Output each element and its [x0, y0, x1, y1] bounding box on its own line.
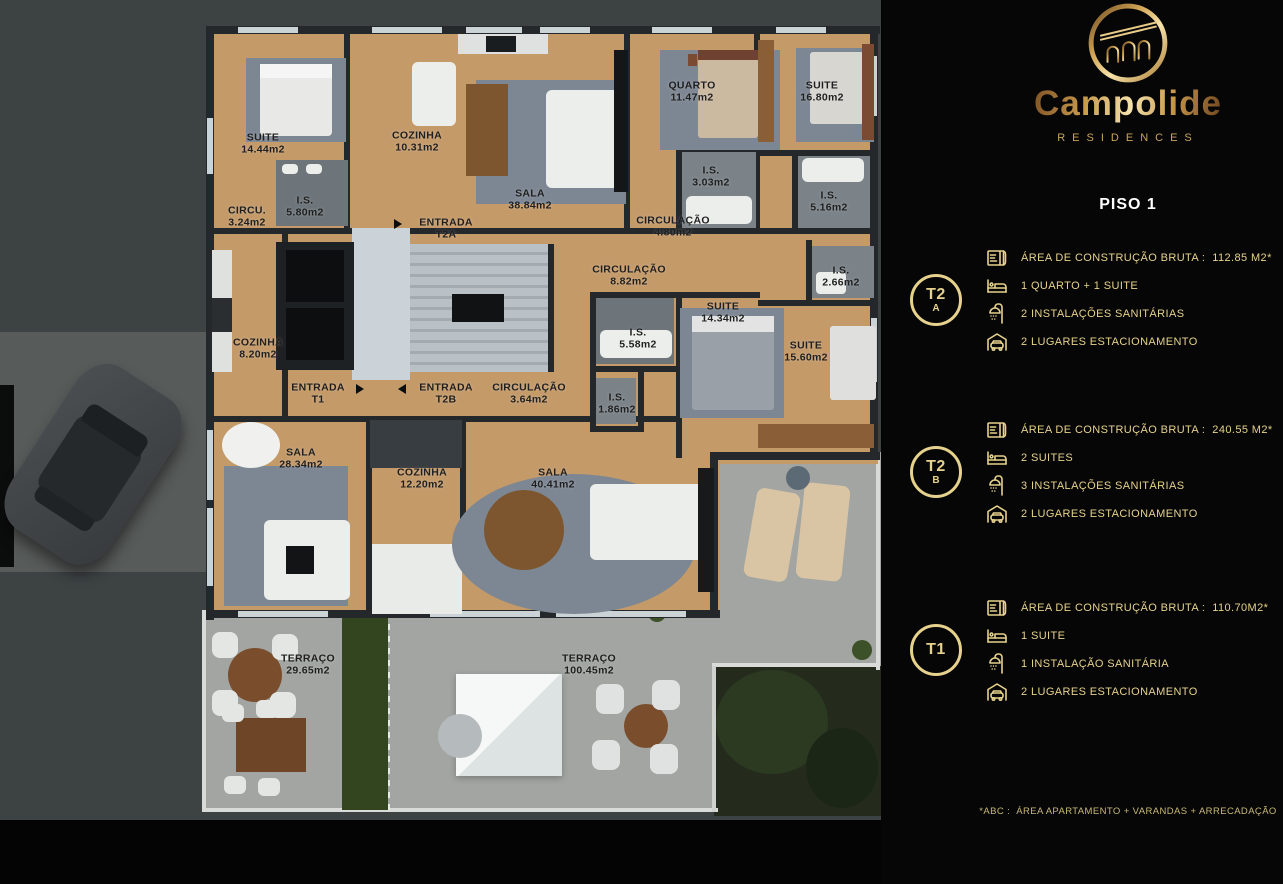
- dining-table: [484, 490, 564, 570]
- spec-row: 2 INSTALAÇÕES SANITÁRIAS: [985, 302, 1184, 326]
- spec-text: 2 LUGARES ESTACIONAMENTO: [1021, 508, 1198, 520]
- room-label: SALA28.34m2: [279, 447, 323, 472]
- room-label: TERRAÇO100.45m2: [562, 653, 616, 678]
- unit-block-t2a: T2AÁREA DE CONSTRUÇÃO BRUTA : 112.85 M2*…: [881, 246, 1283, 358]
- window: [207, 118, 213, 174]
- appliance: [212, 298, 232, 332]
- window: [238, 611, 328, 617]
- spec-row: 1 QUARTO + 1 SUITE: [985, 274, 1138, 298]
- room-label: ENTRADAT2B: [419, 382, 472, 407]
- railing: [202, 808, 718, 812]
- spec-text: 2 LUGARES ESTACIONAMENTO: [1021, 686, 1198, 698]
- ground-bar: [0, 385, 14, 567]
- window: [207, 430, 213, 500]
- unit-block-t1: T1ÁREA DE CONSTRUÇÃO BRUTA : 110.70M2*1 …: [881, 596, 1283, 708]
- toilet: [306, 164, 322, 174]
- entry-arrow-icon: [356, 384, 364, 394]
- window: [372, 27, 442, 33]
- media-unit: [614, 50, 628, 192]
- headboard: [698, 50, 758, 60]
- plan-icon: [985, 418, 1009, 442]
- room-label: CIRCULAÇÃO8.82m2: [592, 264, 666, 289]
- wall: [210, 228, 874, 234]
- room-label: I.S.5.80m2: [286, 195, 323, 220]
- room-label: QUARTO11.47m2: [668, 80, 715, 105]
- shower-icon: [985, 474, 1009, 498]
- shower-icon: [985, 302, 1009, 326]
- unit-badge: T2A: [910, 274, 962, 326]
- room-label: SALA40.41m2: [531, 467, 575, 492]
- brand-name: Campolide: [881, 84, 1283, 124]
- hedge: [342, 612, 388, 810]
- room-label: COZINHA10.31m2: [392, 130, 442, 155]
- wardrobe: [758, 40, 774, 142]
- room-label: TERRAÇO29.65m2: [281, 653, 335, 678]
- elevator-cab: [286, 250, 344, 302]
- car-icon: [985, 680, 1009, 704]
- terrace-chair: [652, 680, 680, 710]
- bed-icon: [985, 274, 1009, 298]
- floor-plan-render: SUITE14.44m2COZINHA10.31m2SALA38.84m2QUA…: [0, 0, 884, 884]
- window: [238, 27, 298, 33]
- entry-arrow-icon: [394, 219, 402, 229]
- room-label: SUITE14.44m2: [241, 132, 285, 157]
- window: [466, 27, 522, 33]
- spec-row: ÁREA DE CONSTRUÇÃO BRUTA : 110.70M2*: [985, 596, 1268, 620]
- plan-icon: [985, 246, 1009, 270]
- spec-text: 2 LUGARES ESTACIONAMENTO: [1021, 336, 1198, 348]
- wall: [590, 366, 682, 372]
- room-label: I.S.5.58m2: [619, 327, 656, 352]
- footnote: *ABC : ÁREA APARTAMENTO + VARANDAS + ARR…: [881, 806, 1283, 817]
- spec-text: 1 INSTALAÇÃO SANITÁRIA: [1021, 658, 1169, 670]
- wall: [548, 244, 554, 372]
- terrace-table: [624, 704, 668, 748]
- railing: [712, 666, 716, 812]
- spec-text: 3 INSTALAÇÕES SANITÁRIAS: [1021, 480, 1184, 492]
- wall: [758, 300, 876, 306]
- spec-text: ÁREA DE CONSTRUÇÃO BRUTA : 110.70M2*: [1021, 602, 1268, 614]
- spec-row: 2 SUITES: [985, 446, 1073, 470]
- spec-text: ÁREA DE CONSTRUÇÃO BRUTA : 240.55 M2*: [1021, 424, 1273, 436]
- coffee-table: [286, 546, 314, 574]
- shower-icon: [985, 652, 1009, 676]
- entry-arrow-icon: [398, 384, 406, 394]
- room-label: SUITE14.34m2: [701, 301, 745, 326]
- lobby: [352, 228, 410, 380]
- brand-subtitle: RESIDENCES: [881, 132, 1283, 144]
- room-label: I.S.2.66m2: [822, 265, 859, 290]
- spec-row: 2 LUGARES ESTACIONAMENTO: [985, 680, 1198, 704]
- media-unit: [698, 468, 714, 592]
- terrace-chair: [256, 700, 278, 718]
- dining-table: [466, 84, 508, 176]
- room-label: I.S.5.16m2: [810, 190, 847, 215]
- terrace-chair: [650, 744, 678, 774]
- wall: [710, 452, 880, 460]
- spec-row: 3 INSTALAÇÕES SANITÁRIAS: [985, 474, 1184, 498]
- terrace-chair: [222, 704, 244, 722]
- room-label: COZINHA12.20m2: [397, 467, 447, 492]
- room-label: SUITE15.60m2: [784, 340, 828, 365]
- floorplan-sheet: SUITE14.44m2COZINHA10.31m2SALA38.84m2QUA…: [0, 0, 1283, 884]
- spec-row: 2 LUGARES ESTACIONAMENTO: [985, 502, 1198, 526]
- side-table: [786, 466, 810, 490]
- terrace-chair: [596, 684, 624, 714]
- unit-block-t2b: T2BÁREA DE CONSTRUÇÃO BRUTA : 240.55 M2*…: [881, 418, 1283, 530]
- room-label: CIRCULAÇÃO3.64m2: [492, 382, 566, 407]
- spec-row: 1 SUITE: [985, 624, 1065, 648]
- room-label: CIRCULAÇÃO4.80m2: [636, 215, 710, 240]
- dining-table: [222, 422, 280, 468]
- spec-text: 1 SUITE: [1021, 630, 1065, 642]
- bed: [830, 326, 876, 400]
- terrace-chair: [258, 778, 280, 796]
- spec-row: ÁREA DE CONSTRUÇÃO BRUTA : 112.85 M2*: [985, 246, 1272, 270]
- ground-dark-band: [0, 820, 884, 884]
- plan-icon: [985, 596, 1009, 620]
- spec-text: 2 INSTALAÇÕES SANITÁRIAS: [1021, 308, 1184, 320]
- wall: [590, 426, 644, 432]
- palm-tree: [806, 728, 878, 808]
- sofa: [546, 90, 620, 188]
- kitchen-counter: [370, 420, 462, 468]
- terrace-chair: [212, 632, 238, 658]
- bathtub: [802, 158, 864, 182]
- stair-landing: [452, 294, 504, 322]
- room-label: COZINHA8.20m2: [233, 337, 283, 362]
- kitchen-counter: [372, 544, 462, 614]
- terrace-dining-table: [236, 718, 306, 772]
- railing: [712, 663, 880, 667]
- spec-row: 2 LUGARES ESTACIONAMENTO: [985, 330, 1198, 354]
- floor-title: PISO 1: [881, 196, 1283, 214]
- elevator-cab: [286, 308, 344, 360]
- spec-row: 1 INSTALAÇÃO SANITÁRIA: [985, 652, 1169, 676]
- room-label: I.S.3.03m2: [692, 165, 729, 190]
- window: [652, 27, 712, 33]
- railing: [202, 610, 206, 812]
- spec-text: 2 SUITES: [1021, 452, 1073, 464]
- window: [776, 27, 826, 33]
- hedge-divider: [388, 612, 390, 810]
- terrace-chair: [224, 776, 246, 794]
- window: [207, 508, 213, 586]
- window: [540, 27, 590, 33]
- brand-logo-icon: [881, 2, 1283, 89]
- car-icon: [985, 330, 1009, 354]
- terrace-chair: [592, 740, 620, 770]
- railing: [876, 452, 880, 670]
- plant: [852, 640, 872, 660]
- room-label: SALA38.84m2: [508, 188, 552, 213]
- appliance: [486, 36, 516, 52]
- unit-badge: T2B: [910, 446, 962, 498]
- kitchen-island: [412, 62, 456, 126]
- spec-text: ÁREA DE CONSTRUÇÃO BRUTA : 112.85 M2*: [1021, 252, 1272, 264]
- info-panel: Campolide RESIDENCES PISO 1 T2AÁREA DE C…: [881, 0, 1283, 884]
- room-label: ENTRADAT1: [291, 382, 344, 407]
- wardrobe: [862, 44, 874, 140]
- bed-pillows: [260, 64, 332, 78]
- spec-text: 1 QUARTO + 1 SUITE: [1021, 280, 1138, 292]
- sofa: [590, 484, 704, 560]
- wardrobe: [758, 424, 874, 448]
- room-label: I.S.1.86m2: [598, 392, 635, 417]
- bed-icon: [985, 446, 1009, 470]
- terrace-table: [438, 714, 482, 758]
- spec-row: ÁREA DE CONSTRUÇÃO BRUTA : 240.55 M2*: [985, 418, 1273, 442]
- room-label: CIRCU.3.24m2: [228, 205, 266, 230]
- nightstand: [688, 54, 697, 66]
- toilet: [282, 164, 298, 174]
- unit-badge: T1: [910, 624, 962, 676]
- car-icon: [985, 502, 1009, 526]
- bed-icon: [985, 624, 1009, 648]
- room-label: SUITE16.80m2: [800, 80, 844, 105]
- room-label: ENTRADAT2A: [419, 217, 472, 242]
